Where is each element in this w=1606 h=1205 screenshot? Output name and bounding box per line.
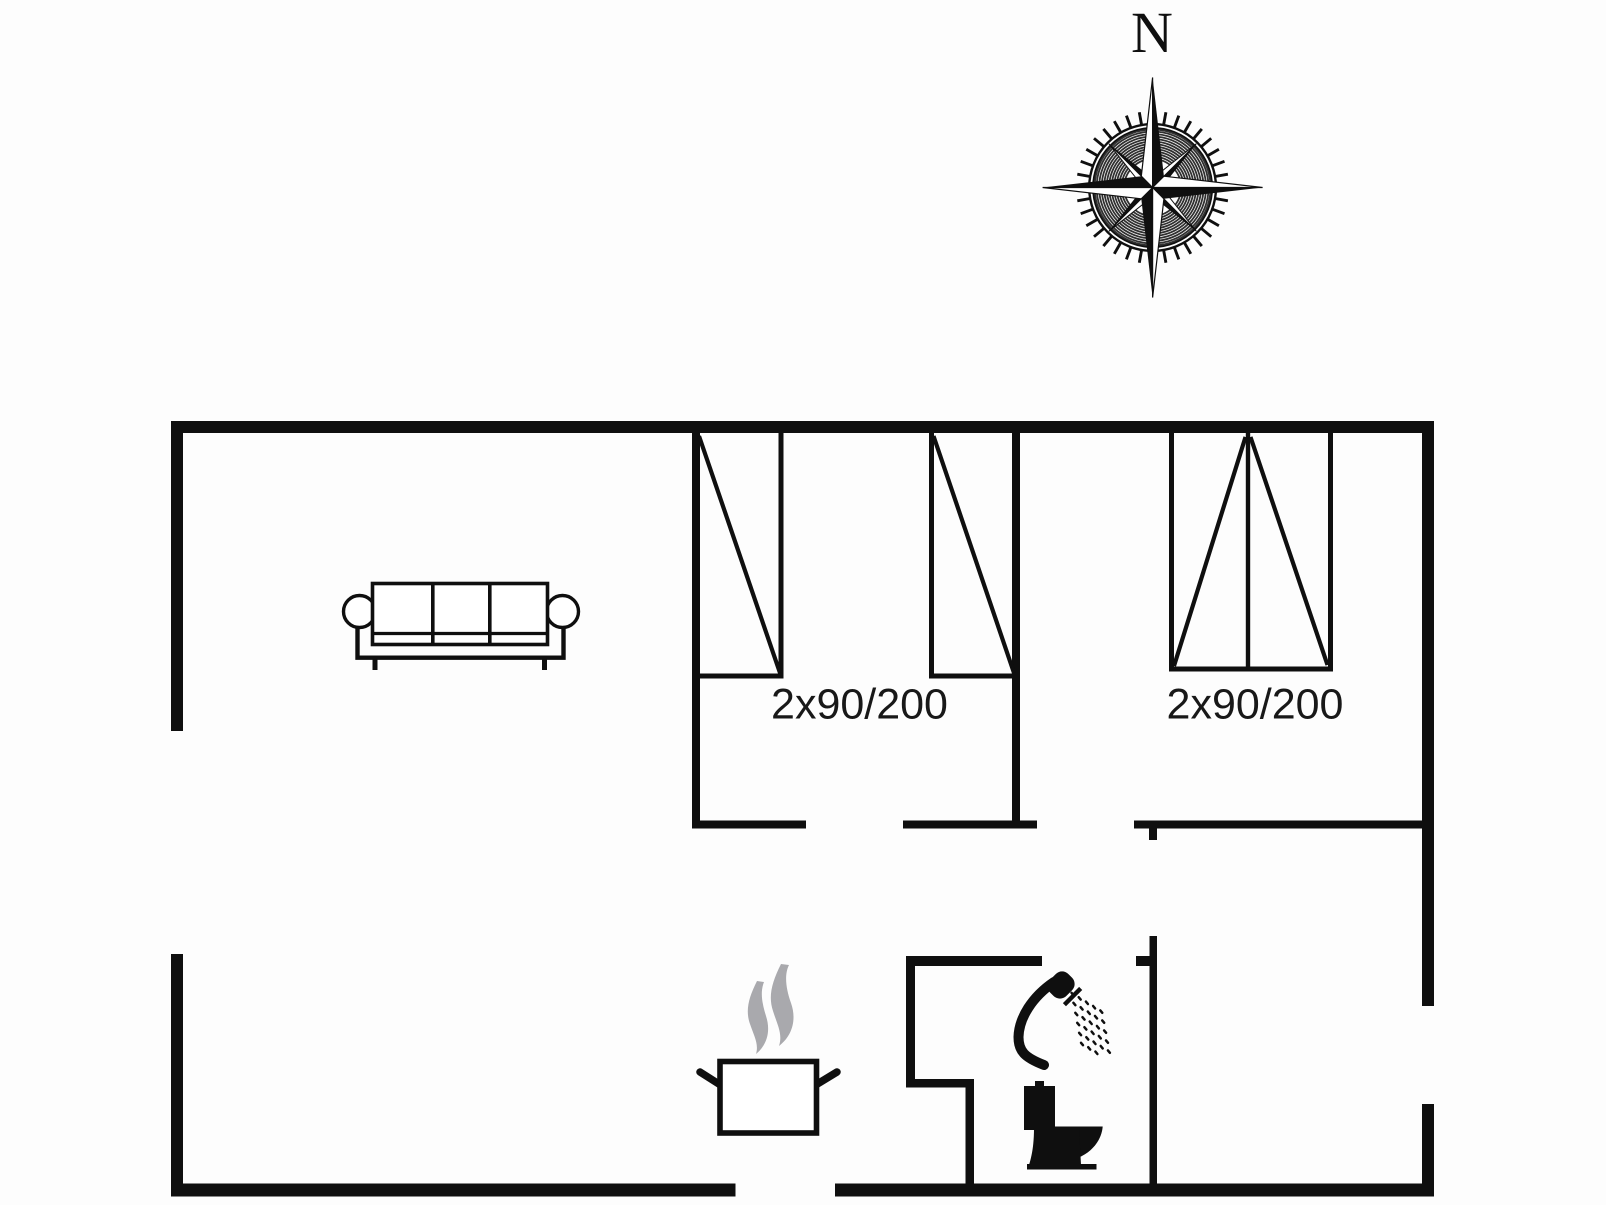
svg-text:2x90/200: 2x90/200 (1167, 681, 1344, 729)
svg-text:N: N (1131, 0, 1173, 65)
svg-text:2x90/200: 2x90/200 (771, 681, 948, 729)
